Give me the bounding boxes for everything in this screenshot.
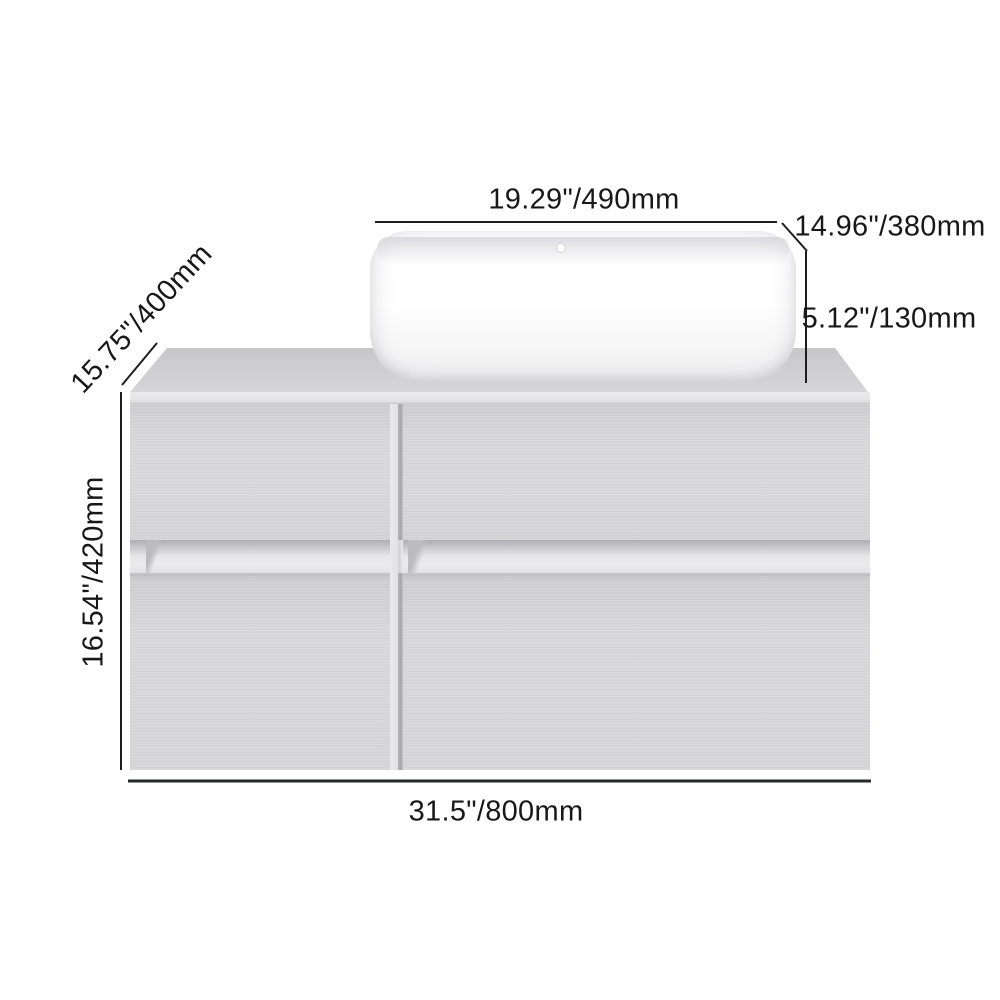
vessel-sink bbox=[370, 231, 796, 383]
dim-label-sink-height: 5.12"/130mm bbox=[802, 303, 977, 336]
dimension-diagram: 19.29"/490mm 14.96"/380mm 5.12"/130mm 15… bbox=[0, 0, 1000, 1000]
divider-shadow-upper bbox=[398, 404, 403, 540]
cabinet-body bbox=[130, 404, 870, 770]
dim-label-cabinet-width: 31.5"/800mm bbox=[409, 796, 584, 829]
dim-label-sink-width: 19.29"/490mm bbox=[488, 184, 679, 217]
dim-label-cabinet-height: 16.54"/420mm bbox=[78, 476, 111, 667]
drawer-top-right bbox=[403, 404, 870, 540]
drawer-top-left bbox=[130, 404, 390, 540]
drawer-bottom-right bbox=[403, 573, 870, 770]
drawer-groove bbox=[130, 540, 870, 573]
drawer-bottom-left bbox=[130, 573, 390, 770]
groove-bevel-left bbox=[146, 540, 162, 573]
divider-shadow-lower bbox=[398, 573, 403, 770]
countertop-front-edge bbox=[130, 392, 870, 404]
dim-label-sink-depth: 14.96"/380mm bbox=[794, 211, 985, 244]
groove-bevel-right bbox=[408, 540, 430, 573]
faucet-hole bbox=[556, 243, 566, 253]
sink-inner-rim-shadow bbox=[377, 237, 789, 265]
